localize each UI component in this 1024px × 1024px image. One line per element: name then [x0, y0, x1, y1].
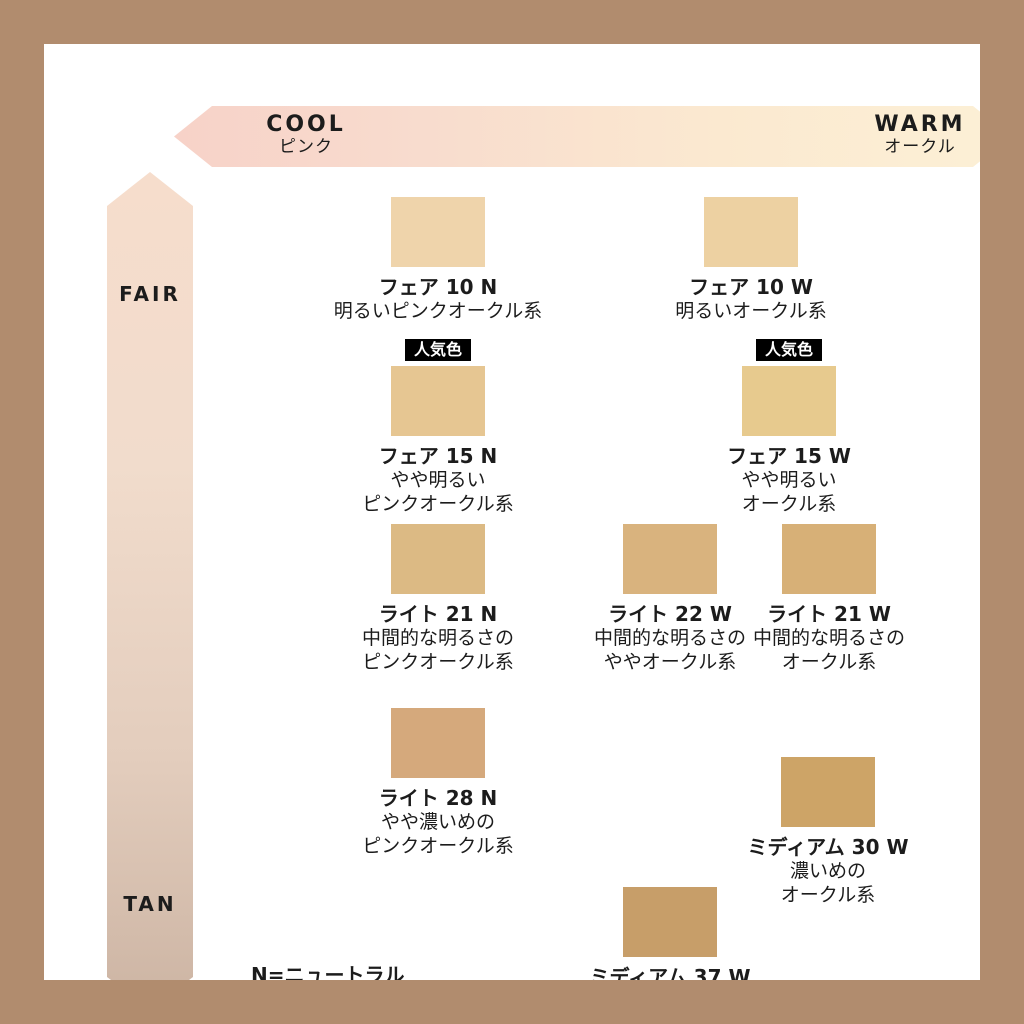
shade-desc: オークル系: [679, 492, 899, 516]
shade-name: ライト 21 N: [328, 602, 548, 626]
shade-swatch: [704, 197, 798, 267]
shade-swatch: [781, 757, 875, 827]
shade-swatch: [391, 366, 485, 436]
shade-desc: オークル系: [719, 650, 939, 674]
shade-desc: 中間的な明るさの: [719, 626, 939, 650]
shade-chart-frame: COOL ピンク WARM オークル FAIR TAN フェア 10 N 明るい…: [0, 0, 1024, 1024]
shade-desc: 明るいピンクオークル系: [328, 299, 548, 323]
shade-swatch: [623, 887, 717, 957]
shade-card-medium-30w: ミディアム 30 W 濃いめの オークル系: [718, 757, 938, 907]
popular-badge: 人気色: [756, 339, 822, 361]
shade-name: フェア 10 N: [328, 275, 548, 299]
cool-axis-sublabel: ピンク: [206, 137, 406, 157]
warm-axis-label: WARM: [820, 113, 1020, 137]
shade-desc: 中間的な明るさの: [328, 626, 548, 650]
shade-card-fair-10w: フェア 10 W 明るいオークル系: [641, 197, 861, 323]
shade-name: ライト 21 W: [719, 602, 939, 626]
shade-card-fair-15w: 人気色 フェア 15 W やや明るい オークル系: [679, 339, 899, 516]
shade-desc: ピンクオークル系: [328, 492, 548, 516]
shade-name: フェア 10 W: [641, 275, 861, 299]
shade-card-fair-15n: 人気色 フェア 15 N やや明るい ピンクオークル系: [328, 339, 548, 516]
shade-name: フェア 15 W: [679, 444, 899, 468]
shade-card-medium-37w: ミディアム 37 W 濃いややオークル系: [560, 887, 780, 1013]
shade-swatch: [782, 524, 876, 594]
tan-axis-label: TAN: [107, 892, 193, 916]
shade-desc: ピンクオークル系: [328, 834, 548, 858]
shade-name: フェア 15 N: [328, 444, 548, 468]
popular-badge-wrap: 人気色: [679, 339, 899, 366]
cool-axis-label: COOL: [206, 113, 406, 137]
shade-desc: 濃いめの: [718, 859, 938, 883]
shade-swatch: [742, 366, 836, 436]
shade-desc: やや明るい: [679, 468, 899, 492]
cool-warm-axis-arrow: COOL ピンク WARM オークル: [174, 106, 1011, 167]
shade-card-light-21n: ライト 21 N 中間的な明るさの ピンクオークル系: [328, 524, 548, 674]
shade-desc: ピンクオークル系: [328, 650, 548, 674]
popular-badge: 人気色: [405, 339, 471, 361]
shade-code-legend: N=ニュートラル W=ウォーム: [251, 962, 405, 1016]
shade-name: ミディアム 37 W: [560, 965, 780, 989]
shade-desc: 明るいオークル系: [641, 299, 861, 323]
fair-tan-axis-arrow: FAIR TAN: [107, 172, 193, 1009]
shade-name: ミディアム 30 W: [718, 835, 938, 859]
shade-desc: 濃いややオークル系: [560, 989, 780, 1013]
shade-card-fair-10n: フェア 10 N 明るいピンクオークル系: [328, 197, 548, 323]
shade-desc: やや濃いめの: [328, 810, 548, 834]
shade-name: ライト 28 N: [328, 786, 548, 810]
shade-card-light-28n: ライト 28 N やや濃いめの ピンクオークル系: [328, 708, 548, 858]
shade-swatch: [391, 197, 485, 267]
shade-desc: やや明るい: [328, 468, 548, 492]
shade-swatch: [391, 524, 485, 594]
legend-line-w: W=ウォーム: [251, 989, 405, 1016]
popular-badge-wrap: 人気色: [328, 339, 548, 366]
legend-line-n: N=ニュートラル: [251, 962, 405, 989]
shade-card-light-21w: ライト 21 W 中間的な明るさの オークル系: [719, 524, 939, 674]
shade-swatch: [391, 708, 485, 778]
warm-axis-sublabel: オークル: [820, 137, 1020, 157]
fair-axis-label: FAIR: [107, 282, 193, 306]
shade-swatch: [623, 524, 717, 594]
